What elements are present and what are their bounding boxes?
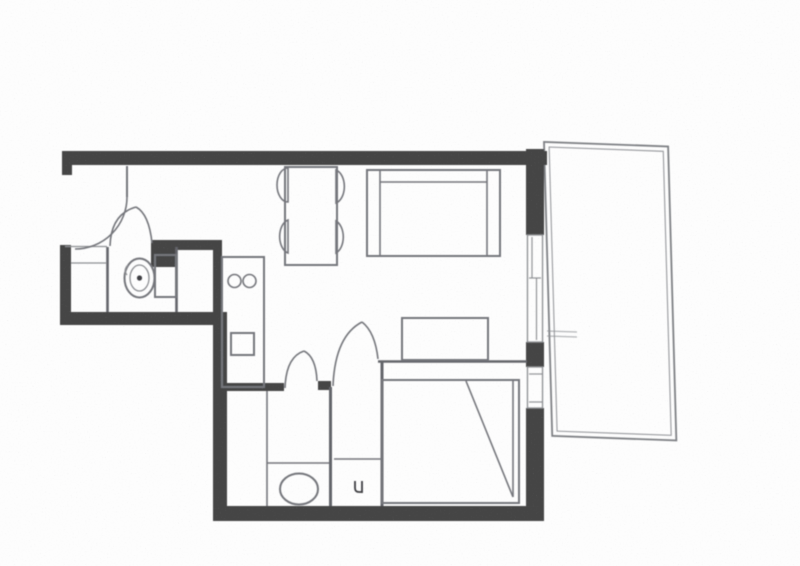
scan-noise-overlay: [0, 0, 800, 566]
scanned-floor-plan-page: [0, 0, 800, 566]
floor-plan-canvas: [0, 0, 800, 566]
